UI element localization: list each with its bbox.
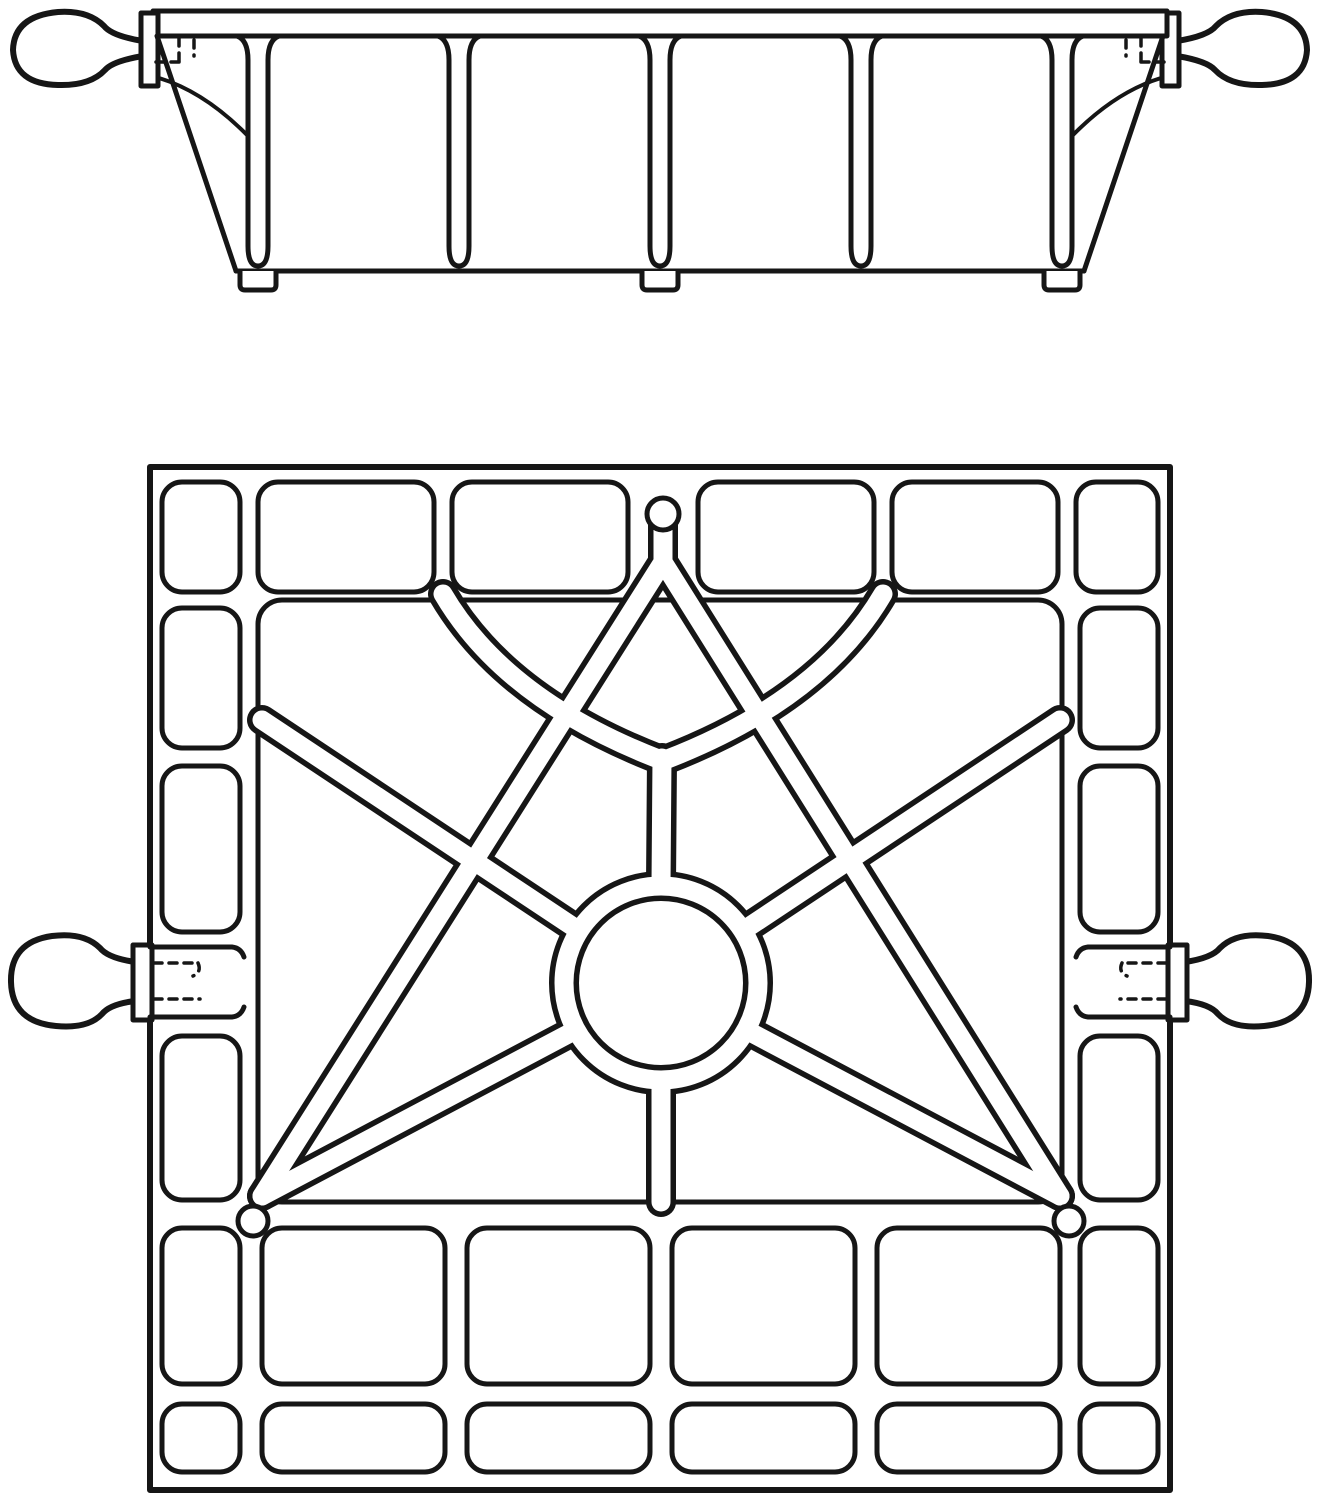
corner-boss-circle [238,1206,268,1236]
border-opening-cell [877,1404,1060,1472]
body-slant-side-left [157,36,236,271]
border-opening-cell [162,1404,240,1472]
elevation-right-mirror-group [1072,12,1307,271]
border-opening-cell [1080,608,1158,748]
handle-end-plate-left [141,13,158,86]
elevation-view [13,11,1307,290]
plan-handle-plate-right [1168,945,1187,1020]
border-opening-cell [467,1404,650,1472]
border-opening-cell [892,482,1058,592]
handle-knob-right [1177,12,1307,85]
border-opening-cell [1080,766,1158,932]
border-opening-cell [162,1228,240,1384]
border-opening-cell [467,1228,650,1384]
elevation-foot [240,271,276,290]
corner-boss-circle [1054,1206,1084,1236]
plan-handle-plate-left [133,945,152,1020]
top-boss-circle [647,498,679,530]
border-opening-cell [452,482,628,592]
border-opening-cell [1080,1036,1158,1200]
border-opening-cell [672,1228,855,1384]
border-opening-cell [162,766,240,932]
star-rib-core [661,758,662,884]
elevation-rib [1041,36,1083,266]
border-opening-cell [1080,1228,1158,1384]
border-opening-cell [262,1228,445,1384]
elevation-rib [237,36,279,266]
technical-drawing [0,0,1322,1500]
elevation-rib [639,36,681,266]
elevation-foot [642,271,678,290]
border-opening-cell [698,482,874,592]
border-opening-cell [877,1228,1060,1384]
border-opening-cell [162,1036,240,1200]
elevation-rib [840,36,882,266]
border-opening-cell [1076,482,1158,592]
border-opening-cell [162,482,240,592]
drawing-canvas [0,0,1322,1500]
plan-handle-knob-right [1185,935,1309,1026]
border-opening-cell [262,1404,445,1472]
border-opening-cell [1080,1404,1158,1472]
border-opening-cell [258,482,434,592]
body-slant-side-right [1084,36,1163,271]
plan-view [11,467,1309,1490]
elevation-top-bar [153,11,1167,36]
border-opening-cell [672,1404,855,1472]
handle-knob-left [13,12,143,85]
elevation-rib [438,36,480,266]
border-opening-cell [162,608,240,748]
elevation-foot [1044,271,1080,290]
plan-handle-knob-left [11,935,135,1026]
